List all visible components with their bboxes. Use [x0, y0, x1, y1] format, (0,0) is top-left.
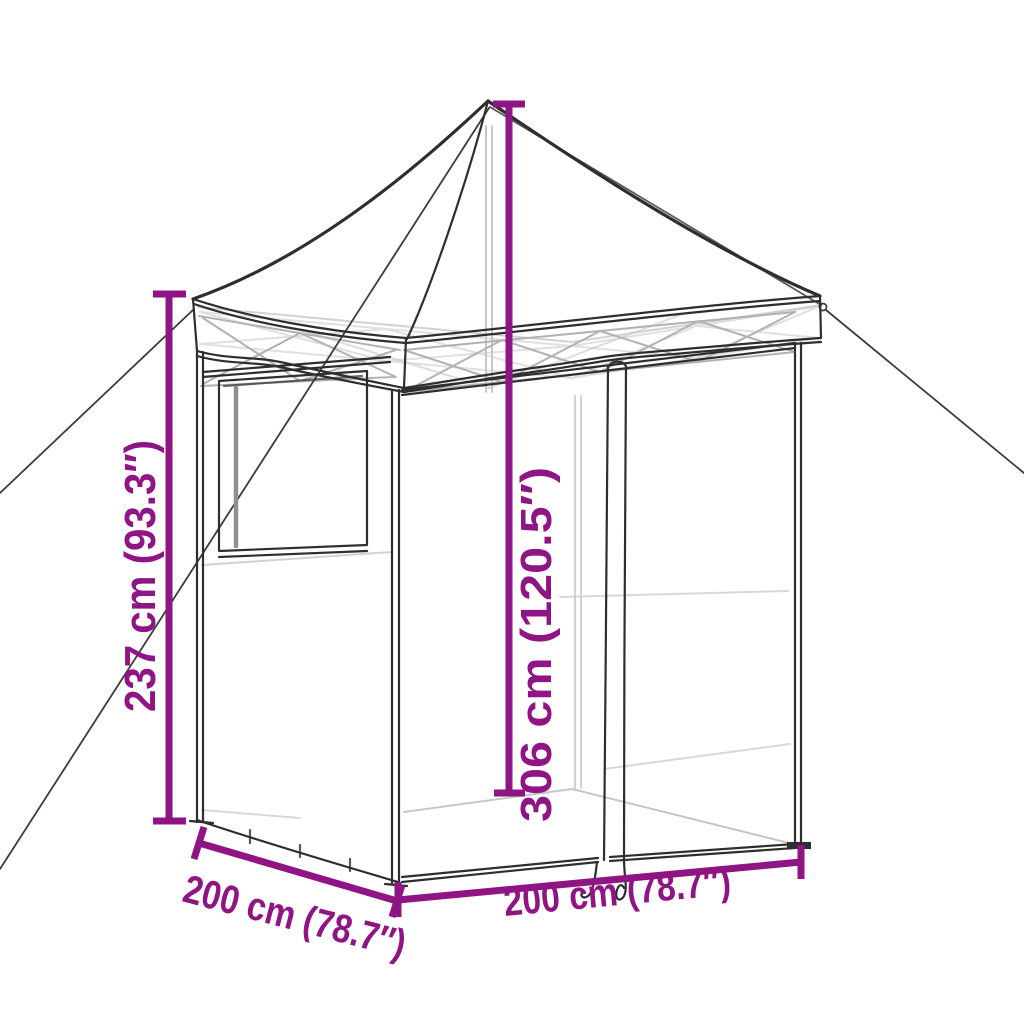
dimension-width: 200 cm (78.7″) — [398, 845, 801, 925]
roof-right-edge — [488, 101, 820, 296]
window-wall — [190, 352, 398, 882]
dimension-peak-height: 306 cm (120.5″) — [493, 104, 561, 822]
peak-left-rope — [0, 108, 489, 869]
door-zipper-seam-right — [624, 366, 626, 858]
right-leg — [795, 343, 801, 845]
roof-left-edge — [193, 101, 488, 299]
product-dimension-diagram: 237 cm (93.3″) 306 cm (120.5″) 200 cm (7… — [0, 0, 1024, 1024]
tent-dimension-illustration: 237 cm (93.3″) 306 cm (120.5″) 200 cm (7… — [0, 0, 1024, 1024]
dimension-label-peak-height: 306 cm (120.5″) — [512, 467, 561, 822]
dimension-label-depth: 200 cm (78.7″) — [179, 867, 411, 967]
front-leg — [392, 390, 399, 884]
dimension-depth: 200 cm (78.7″) — [179, 827, 411, 967]
door-wall — [385, 343, 811, 900]
rear-leg — [575, 396, 581, 788]
window-frame — [219, 371, 367, 551]
dimension-label-side-height: 237 cm (93.3″) — [116, 440, 165, 712]
floor-edge — [404, 789, 797, 845]
left-leg — [197, 352, 203, 822]
right-corner-rope — [826, 310, 1024, 473]
door-zipper-seam-left — [604, 367, 608, 860]
